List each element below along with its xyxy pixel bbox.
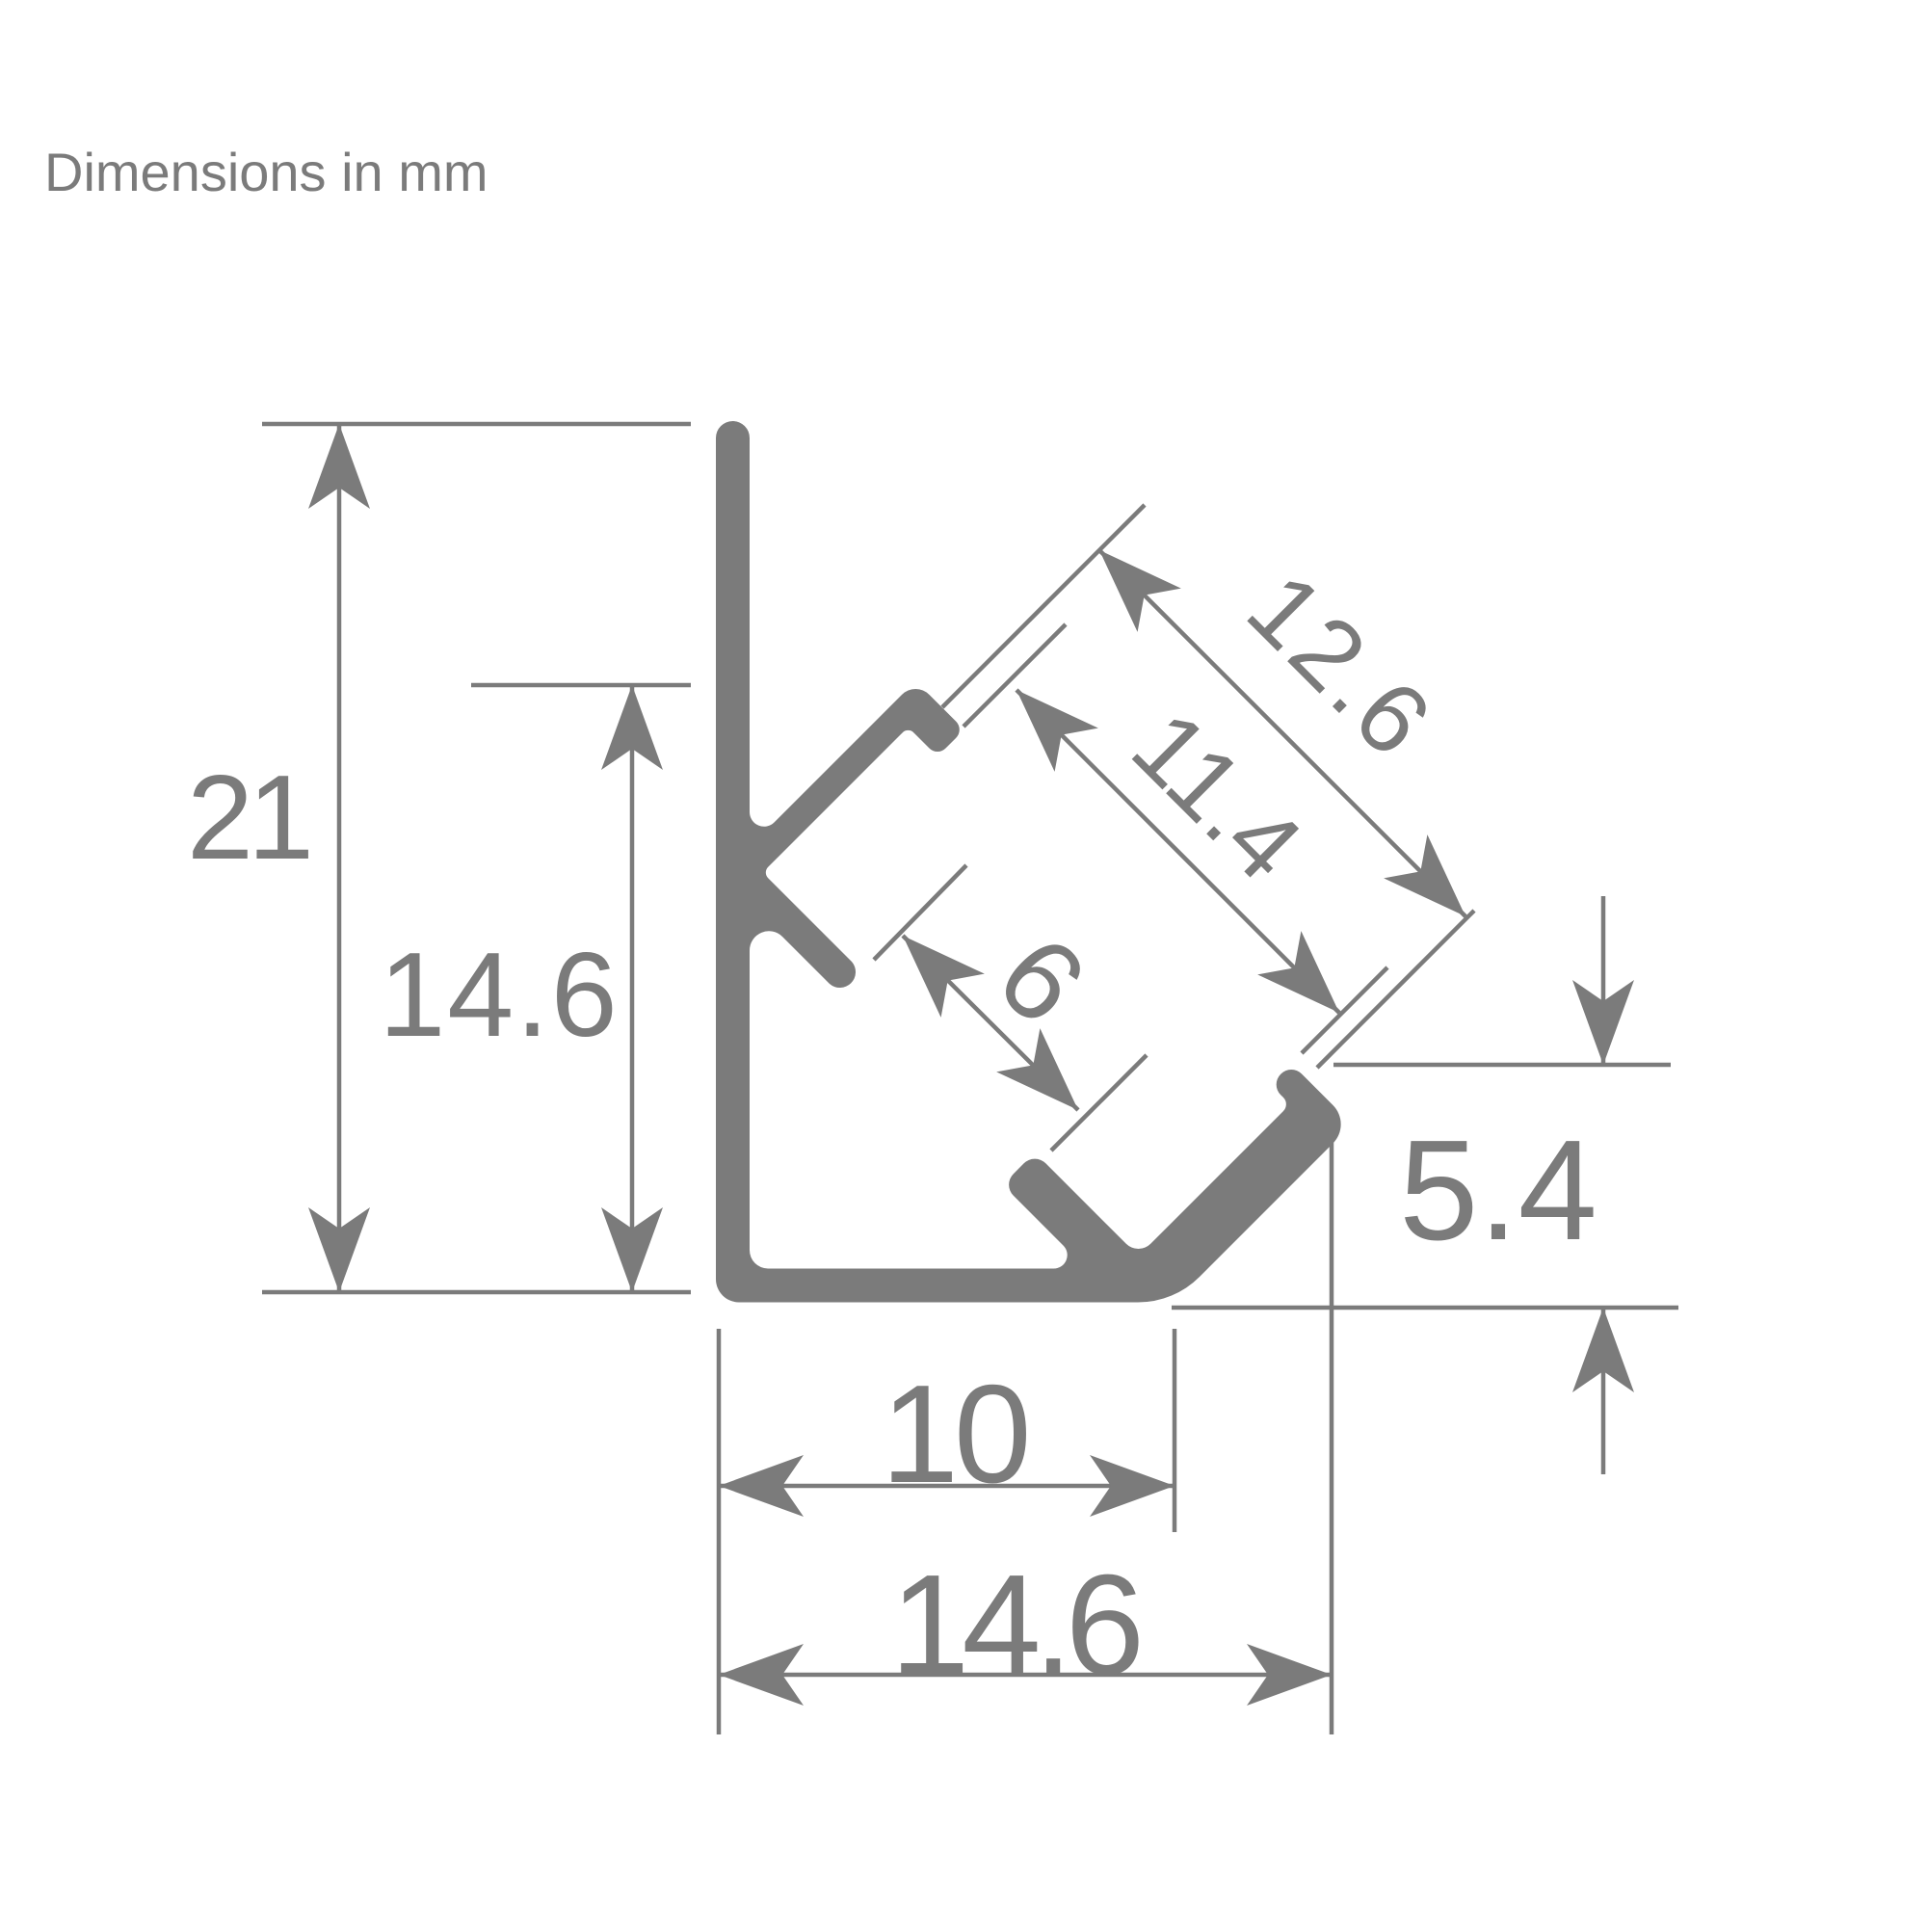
svg-text:5.4: 5.4 — [1399, 1111, 1597, 1270]
svg-text:21: 21 — [187, 752, 308, 885]
svg-text:14.6: 14.6 — [890, 1546, 1139, 1705]
svg-text:14.6: 14.6 — [379, 929, 619, 1062]
svg-text:10: 10 — [881, 1356, 1026, 1512]
svg-text:11.4: 11.4 — [1111, 690, 1323, 902]
svg-text:Dimensions in mm: Dimensions in mm — [44, 142, 488, 202]
svg-text:12.6: 12.6 — [1227, 552, 1454, 780]
